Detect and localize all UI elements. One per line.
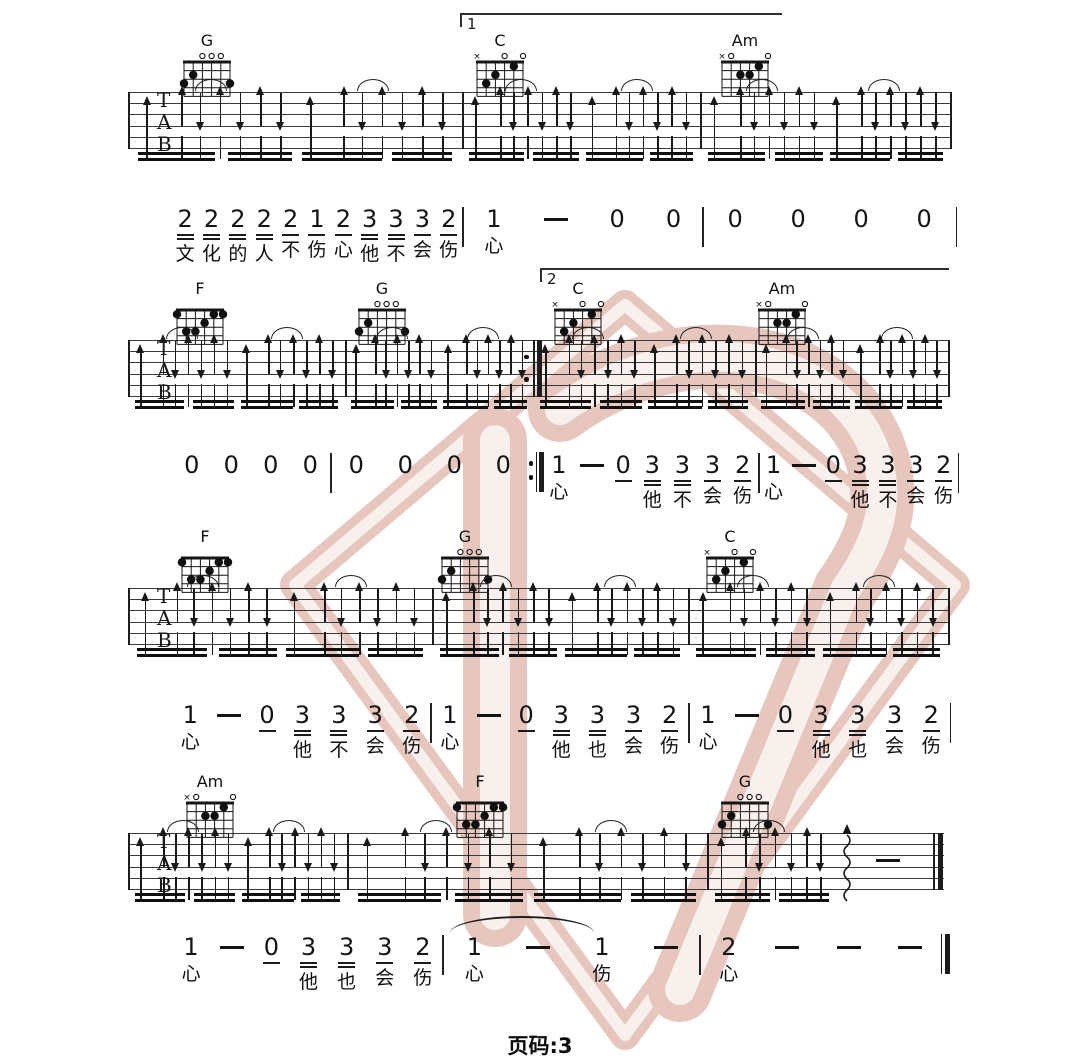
strum-stem <box>676 343 678 374</box>
lyric-char <box>226 721 232 742</box>
bass-note-stem <box>247 844 249 900</box>
strum-down-arrow-icon <box>330 863 338 872</box>
jianpu-dash <box>580 464 604 467</box>
jianpu-token: 1心 <box>484 206 503 257</box>
beam <box>823 648 885 651</box>
strum-stem <box>414 632 416 655</box>
barline <box>128 588 130 645</box>
tie-arc <box>467 327 499 339</box>
strum-up-arrow-icon <box>265 827 273 836</box>
strum-stem <box>446 836 448 867</box>
strum-stem <box>177 591 179 622</box>
strum-stem <box>629 93 631 122</box>
lyric-char: 也 <box>588 740 607 761</box>
beam <box>565 654 626 657</box>
strum-stem <box>740 136 742 159</box>
strum-stem <box>181 136 183 159</box>
strum-down-arrow-icon <box>518 370 526 379</box>
end-repeat-sign <box>528 452 544 498</box>
jianpu-token: 0 <box>303 452 318 503</box>
strum-stem <box>175 341 177 370</box>
strum-stem <box>642 632 644 655</box>
jianpu-number: 1 <box>766 452 781 478</box>
beam <box>135 893 185 896</box>
strum-stem <box>227 384 229 407</box>
strum-down-arrow-icon <box>171 370 179 379</box>
strum-stem <box>688 384 690 407</box>
bass-note-arrow-icon <box>832 96 840 105</box>
lyric-char <box>671 236 677 257</box>
jianpu-number: 0 <box>398 452 413 478</box>
strum-stem <box>488 384 490 407</box>
notation-measure: 1心 1伤 <box>444 934 699 985</box>
beam <box>708 406 748 409</box>
chord-diagram-C: C× <box>697 528 763 602</box>
strum-stem <box>188 877 190 900</box>
strum-stem <box>334 834 336 863</box>
jianpu-number: 3 <box>887 702 902 728</box>
jianpu-token: 1心 <box>465 934 484 985</box>
strum-stem <box>686 93 688 122</box>
beam <box>586 152 643 155</box>
beam <box>302 152 382 155</box>
strum-stem <box>913 341 915 370</box>
strum-stem <box>642 877 644 900</box>
bass-note-stem <box>446 599 448 655</box>
strum-stem <box>431 341 433 370</box>
jianpu-token: 2人 <box>255 206 274 265</box>
jianpu-number: 0 <box>826 452 841 478</box>
strum-up-arrow-icon <box>401 827 409 836</box>
jianpu-number: 3 <box>705 452 720 478</box>
strum-stem <box>657 632 659 655</box>
jianpu-number: 0 <box>853 206 868 232</box>
strum-stem <box>220 95 222 126</box>
strum-stem <box>875 136 877 159</box>
beam <box>455 893 523 896</box>
strum-stem <box>673 589 675 618</box>
strum-stem <box>925 343 927 374</box>
strum-stem <box>489 836 491 867</box>
jianpu-token <box>217 702 241 742</box>
strum-stem <box>408 384 410 407</box>
chord-label: G <box>376 280 388 298</box>
volta-bracket: 2 <box>540 268 949 282</box>
bass-note-stem <box>592 103 594 159</box>
strum-down-arrow-icon <box>538 122 546 131</box>
beam <box>761 406 805 409</box>
strum-stem <box>621 836 623 867</box>
beam <box>893 654 940 657</box>
strum-stem <box>621 343 623 374</box>
strum-up-arrow-icon <box>617 827 625 836</box>
staff-line <box>128 588 948 589</box>
strum-up-arrow-icon <box>756 582 764 591</box>
beam <box>696 648 756 651</box>
bass-note-arrow-icon <box>442 592 450 601</box>
strum-stem <box>321 877 323 900</box>
strum-stem <box>468 834 470 863</box>
strum-stem <box>786 343 788 374</box>
jianpu-token: 2心 <box>334 206 353 261</box>
beam <box>708 400 748 403</box>
strum-stem <box>268 343 270 374</box>
strum-stem <box>424 834 426 863</box>
tie-arc <box>787 327 819 339</box>
strum-down-arrow-icon <box>740 618 748 627</box>
strum-down-arrow-icon <box>929 618 937 627</box>
staff-line <box>128 622 948 623</box>
strum-up-arrow-icon <box>803 827 811 836</box>
strum-up-arrow-icon <box>782 334 790 343</box>
strum-up-arrow-icon <box>485 827 493 836</box>
strum-stem <box>308 834 310 863</box>
jianpu-token: 2伤 <box>660 702 679 757</box>
strum-stem <box>744 589 746 618</box>
lyric-char <box>307 482 313 503</box>
beam <box>540 400 591 403</box>
chord-label: C <box>494 32 505 50</box>
beam <box>600 400 642 403</box>
lyric-char: 会 <box>703 486 722 507</box>
barline <box>347 833 349 890</box>
jianpu-token: 0 <box>263 452 278 503</box>
strum-stem <box>228 834 230 863</box>
chord-label: Am <box>197 773 224 791</box>
jianpu-number: 0 <box>727 206 742 232</box>
jianpu-number: 2 <box>283 206 298 232</box>
jianpu-dash <box>837 946 861 949</box>
strum-up-arrow-icon <box>317 827 325 836</box>
strum-stem <box>188 384 190 407</box>
bass-note-arrow-icon <box>136 344 144 353</box>
strum-down-arrow-icon <box>276 122 284 131</box>
repeat-dot <box>524 355 529 360</box>
lyric-char <box>268 968 274 989</box>
tab-staff-letter: T <box>157 586 170 606</box>
underline <box>263 962 280 964</box>
strum-stem <box>385 384 387 407</box>
strum-stem <box>657 136 659 159</box>
lyric-char <box>907 953 913 974</box>
jianpu-token: 3会 <box>906 452 925 507</box>
jianpu-number: 0 <box>303 452 318 478</box>
strum-stem <box>280 93 282 122</box>
strum-stem <box>212 591 214 622</box>
strum-down-arrow-icon <box>755 863 763 872</box>
staff-line <box>128 878 944 879</box>
notation-measure: 0 0 0 0 <box>172 452 330 503</box>
strum-stem <box>890 341 892 370</box>
jianpu-token: 2伤 <box>439 206 458 261</box>
strum-up-arrow-icon <box>898 334 906 343</box>
tie-arc <box>505 79 537 91</box>
lyric-char: 他 <box>812 740 831 761</box>
jianpu-number: 2 <box>936 452 951 478</box>
beam <box>135 400 185 403</box>
underline <box>259 730 276 732</box>
lyric-char <box>858 236 864 257</box>
strum-stem <box>419 343 421 374</box>
lyric-char: 他 <box>293 740 312 761</box>
strum-up-arrow-icon <box>726 582 734 591</box>
strum-down-arrow-icon <box>803 618 811 627</box>
tab-staff-letter: A <box>157 112 171 132</box>
jianpu-token: 1心 <box>549 452 568 503</box>
tie-arc <box>881 327 913 339</box>
strum-stem <box>522 341 524 370</box>
barline <box>755 340 757 397</box>
strum-stem <box>542 136 544 159</box>
strum-stem <box>569 343 571 374</box>
strum-down-arrow-icon <box>404 370 412 379</box>
bass-note-stem <box>294 599 296 655</box>
lyric-char <box>782 736 788 757</box>
jianpu-dash <box>544 218 568 221</box>
jianpu-token: 0 <box>666 206 681 257</box>
underline <box>300 966 317 968</box>
jianpu-token: 0 <box>263 934 280 989</box>
strum-down-arrow-icon <box>625 122 633 131</box>
strum-down-arrow-icon <box>198 863 206 872</box>
strum-down-arrow-icon <box>190 618 198 627</box>
lyric-char <box>620 486 626 507</box>
beam <box>242 893 295 896</box>
strum-stem <box>193 589 195 618</box>
strum-up-arrow-icon <box>617 334 625 343</box>
strum-stem <box>932 632 934 655</box>
strum-stem <box>820 384 822 407</box>
strum-stem <box>715 384 717 407</box>
jianpu-token <box>837 934 861 974</box>
strum-down-arrow-icon <box>682 122 690 131</box>
strum-down-arrow-icon <box>933 370 941 379</box>
strum-stem <box>332 384 334 407</box>
notation-measure: 1心 0 3他3不3会2伤 <box>544 452 758 511</box>
strum-down-arrow-icon <box>638 863 646 872</box>
strum-stem <box>629 136 631 159</box>
bass-note-arrow-icon <box>762 344 770 353</box>
strum-stem <box>511 834 513 863</box>
jianpu-number: 1 <box>442 702 457 728</box>
staff-line <box>128 351 948 352</box>
chord-diagram-G: G <box>174 32 240 106</box>
strum-stem <box>702 343 704 374</box>
beam <box>135 899 185 902</box>
jianpu-number: 3 <box>554 702 569 728</box>
jianpu-dash <box>898 946 922 949</box>
lyric-char <box>353 482 359 503</box>
underline <box>282 234 299 236</box>
score-area: TAB1GC×Am×TAB2FGC×Am×TABFGC×TABAm×FG2文2化… <box>0 0 1080 1060</box>
lyric-char <box>264 736 270 757</box>
notation-line-2: 0 0 0 0 0 0 0 0 1心 0 3他3不3会2伤1心 0 3他3不3会… <box>172 452 959 511</box>
bass-note-arrow-icon <box>471 96 479 105</box>
strum-stem <box>281 834 283 863</box>
jianpu-dash <box>792 464 816 467</box>
strum-stem <box>321 836 323 867</box>
jianpu-number: 0 <box>496 452 511 478</box>
strum-stem <box>870 589 872 618</box>
repeat-dot <box>529 461 534 466</box>
strum-down-arrow-icon <box>669 618 677 627</box>
beam <box>533 152 578 155</box>
jianpu-token: 0 <box>496 452 511 503</box>
strum-up-arrow-icon <box>289 334 297 343</box>
tab-staff-letter: B <box>157 630 172 650</box>
strum-stem <box>513 136 515 159</box>
jianpu-number: 2 <box>336 206 351 232</box>
strum-up-arrow-icon <box>291 827 299 836</box>
lyric-char <box>485 721 491 742</box>
strum-down-arrow-icon <box>427 370 435 379</box>
lyric-char: 心 <box>465 964 484 985</box>
strum-up-arrow-icon <box>371 334 379 343</box>
strum-stem <box>616 136 618 159</box>
tie-arc <box>621 79 653 91</box>
strum-stem <box>220 136 222 159</box>
jianpu-number: 2 <box>178 206 193 232</box>
strum-stem <box>799 136 801 159</box>
strum-stem <box>396 632 398 655</box>
lyric-char <box>784 953 790 974</box>
strum-stem <box>200 136 202 159</box>
strum-up-arrow-icon <box>208 582 216 591</box>
beam <box>469 152 524 155</box>
jianpu-token: 3他 <box>851 452 870 511</box>
strum-up-arrow-icon <box>178 86 186 95</box>
jianpu-token: 0 <box>349 452 364 503</box>
beam <box>135 406 185 409</box>
jianpu-token <box>775 934 799 974</box>
chord-label: G <box>201 32 213 50</box>
strum-down-arrow-icon <box>224 863 232 872</box>
beam <box>351 400 394 403</box>
strum-stem <box>214 384 216 407</box>
lyric-char <box>268 482 274 503</box>
strum-up-arrow-icon <box>672 334 680 343</box>
strum-stem <box>664 836 666 867</box>
beam <box>648 406 701 409</box>
strum-up-arrow-icon <box>590 334 598 343</box>
beam <box>631 899 696 902</box>
strum-up-arrow-icon <box>771 827 779 836</box>
jianpu-number: 2 <box>721 934 736 960</box>
beam <box>540 406 591 409</box>
strum-stem <box>419 384 421 407</box>
volta-number: 1 <box>467 15 477 33</box>
strum-up-arrow-icon <box>256 86 264 95</box>
jianpu-token: 3他 <box>812 702 831 761</box>
strum-stem <box>569 384 571 407</box>
jianpu-token: 3会 <box>375 934 394 989</box>
strum-stem <box>744 632 746 655</box>
strum-stem <box>784 93 786 122</box>
strum-stem <box>377 632 379 655</box>
beam <box>509 654 558 657</box>
jianpu-token: 2伤 <box>413 934 432 989</box>
strum-down-arrow-icon <box>711 370 719 379</box>
jianpu-token: 3会 <box>366 702 385 757</box>
jianpu-number: 2 <box>924 702 939 728</box>
staff-line <box>128 844 944 845</box>
jianpu-token: 1心 <box>764 452 783 503</box>
jianpu-number: 3 <box>368 702 383 728</box>
lyric-char <box>535 953 541 974</box>
staff-line <box>128 396 948 397</box>
jianpu-token: 1心 <box>181 702 200 753</box>
strum-stem <box>913 384 915 407</box>
strum-stem <box>806 632 808 655</box>
barline <box>345 340 347 397</box>
strum-up-arrow-icon <box>264 334 272 343</box>
strum-stem <box>163 836 165 867</box>
beam <box>648 400 701 403</box>
strum-stem <box>935 93 937 122</box>
jianpu-token: 0 <box>916 206 931 257</box>
strum-stem <box>405 836 407 867</box>
barline <box>432 588 434 645</box>
strum-down-arrow-icon <box>495 370 503 379</box>
underline <box>203 238 220 240</box>
strum-up-arrow-icon <box>575 827 583 836</box>
jianpu-number: 0 <box>184 452 199 478</box>
beam <box>565 648 626 651</box>
beam <box>301 899 340 902</box>
strum-down-arrow-icon <box>931 122 939 131</box>
strum-down-arrow-icon <box>473 370 481 379</box>
tab-system-2: TAB2FGC×Am× <box>0 0 1080 1060</box>
strum-stem <box>920 95 922 126</box>
underline <box>553 730 570 732</box>
bass-note-stem <box>572 599 574 655</box>
strum-stem <box>742 384 744 407</box>
strum-up-arrow-icon <box>736 86 744 95</box>
underline <box>229 234 246 236</box>
strum-stem <box>902 384 904 407</box>
chord-label: F <box>475 773 484 791</box>
page-number: 页码:3 <box>0 1030 1080 1060</box>
notation-measure: 0 0 0 0 <box>332 452 528 503</box>
jianpu-number: 3 <box>675 452 690 478</box>
underline <box>674 480 691 482</box>
tab-staff-letter: A <box>157 360 171 380</box>
strum-up-arrow-icon <box>184 827 192 836</box>
jianpu-token: 3他 <box>552 702 571 761</box>
strum-stem <box>597 591 599 622</box>
strum-down-arrow-icon <box>595 863 603 872</box>
jianpu-token: 3会 <box>624 702 643 757</box>
barline <box>128 833 130 890</box>
strum-stem <box>843 341 845 370</box>
underline <box>518 730 535 732</box>
beam <box>138 152 215 155</box>
strum-up-arrow-icon <box>393 334 401 343</box>
tie-arc <box>753 820 785 832</box>
jianpu-token: 3会 <box>885 702 904 757</box>
strum-stem <box>181 95 183 126</box>
strum-stem <box>402 93 404 122</box>
jianpu-number: 3 <box>880 452 895 478</box>
strum-stem <box>201 834 203 863</box>
strum-stem <box>671 136 673 159</box>
jianpu-token <box>544 206 568 246</box>
strum-stem <box>488 343 490 374</box>
jianpu-number: 3 <box>339 934 354 960</box>
bass-note-stem <box>714 103 716 159</box>
bass-note-arrow-icon <box>826 592 834 601</box>
beam <box>228 158 291 161</box>
